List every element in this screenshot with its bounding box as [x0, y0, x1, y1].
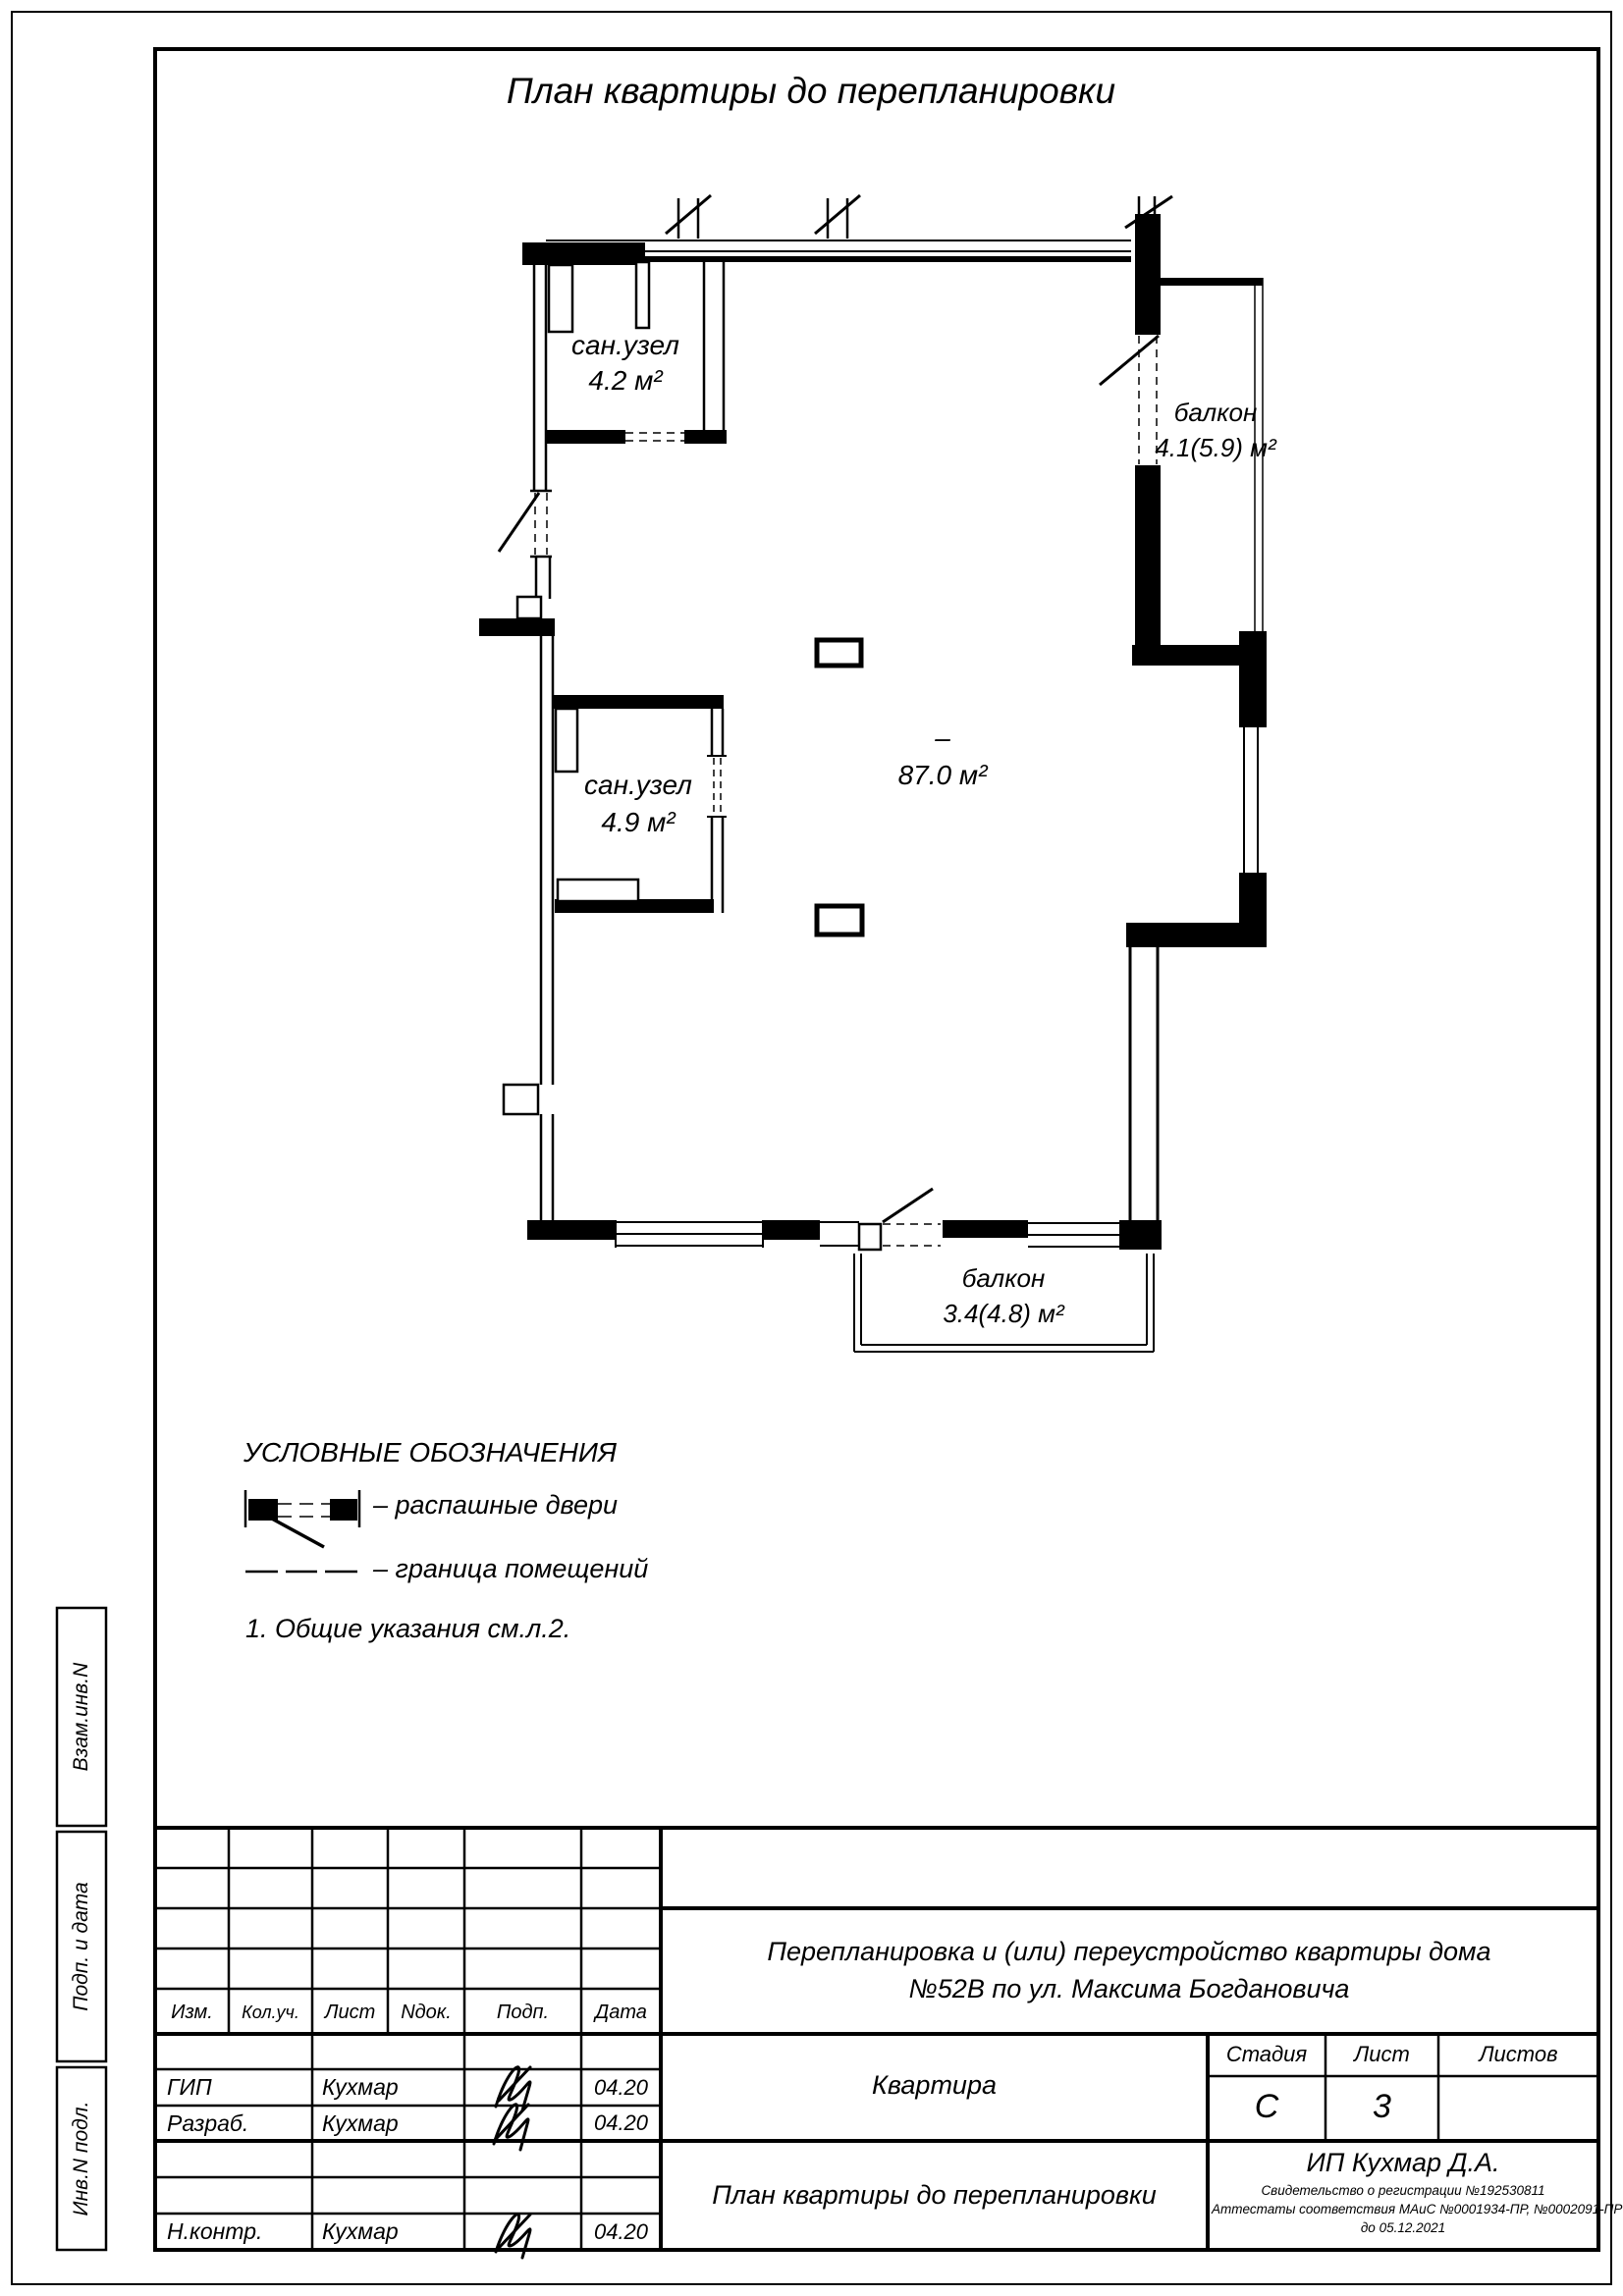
- tb-row-date: 04.20: [581, 2106, 661, 2141]
- tb-sheet-title: План квартиры до перепланировки: [671, 2141, 1198, 2250]
- sidebar-cell-inv: Инв.N подл.: [57, 2067, 106, 2250]
- bottom-wall: [527, 1189, 1162, 1250]
- drawing-sheet: План квартиры до перепланировки сан.узел…: [0, 0, 1623, 2296]
- sidebar-cell-vzam: Взам.инв.N: [57, 1608, 106, 1826]
- tb-col-ndok: Nдок.: [388, 1993, 464, 2032]
- duct: [558, 880, 638, 901]
- balcony-right-area: 4.1(5.9) м²: [1117, 434, 1314, 463]
- column: [817, 640, 861, 666]
- door-swing: [1100, 336, 1159, 385]
- tb-row-name: Кухмар: [322, 2069, 460, 2106]
- legend-item-boundary: – граница помещений: [373, 1554, 648, 1584]
- pilaster: [504, 1085, 538, 1114]
- pilaster: [517, 597, 541, 618]
- tb-sheet-value: 3: [1325, 2076, 1438, 2137]
- balcony-right-name: балкон: [1117, 399, 1314, 428]
- tb-firm: ИП Кухмар Д.А.: [1212, 2148, 1595, 2178]
- tb-row-date: 04.20: [581, 2214, 661, 2250]
- tb-col-data: Дата: [581, 1993, 661, 2032]
- room-san42-area: 4.2 м²: [527, 365, 724, 397]
- tb-object: Квартира: [671, 2034, 1198, 2137]
- tb-row-role: Разраб.: [167, 2106, 310, 2141]
- room-main-area: 87.0 м²: [844, 760, 1041, 791]
- tb-sheets-value: [1438, 2076, 1598, 2137]
- door-swing: [499, 493, 539, 552]
- column: [817, 906, 862, 934]
- tb-project-title: Перепланировка и (или) переустройство кв…: [736, 1912, 1522, 2030]
- tb-stage-label: Стадия: [1208, 2036, 1325, 2073]
- page-title: План квартиры до перепланировки: [320, 71, 1302, 113]
- tb-row-role: ГИП: [167, 2069, 310, 2106]
- tb-cert1: Свидетельство о регистрации №192530811: [1212, 2183, 1595, 2199]
- door-swing: [883, 1189, 933, 1222]
- room-san49: [553, 695, 727, 913]
- balcony-bottom-name: балкон: [905, 1264, 1102, 1294]
- right-wall: [1100, 214, 1267, 1222]
- room-san42-name: сан.узел: [527, 330, 724, 361]
- room-san49-area: 4.9 м²: [540, 807, 736, 838]
- tb-col-podp: Подп.: [464, 1993, 581, 2032]
- tb-sheet-label: Лист: [1325, 2036, 1438, 2073]
- tb-stage-value: С: [1208, 2076, 1325, 2137]
- signature: [494, 2067, 530, 2258]
- duct: [556, 709, 577, 772]
- tb-row-name: Кухмар: [322, 2214, 460, 2250]
- tb-cert2: Аттестаты соответствия МАиС №0001934-ПР,…: [1212, 2202, 1595, 2217]
- sidebar-cell-podp: Подп. и дата: [57, 1832, 106, 2061]
- balcony-bottom-area: 3.4(4.8) м²: [905, 1300, 1102, 1329]
- swing-door-symbol: [245, 1490, 359, 1547]
- vent-stack-icon: [666, 195, 1172, 239]
- legend-item-doors: – распашные двери: [373, 1490, 618, 1521]
- tb-col-list: Лист: [312, 1993, 388, 2032]
- legend-heading: УСЛОВНЫЕ ОБОЗНАЧЕНИЯ: [243, 1437, 617, 1468]
- tb-cert3: до 05.12.2021: [1212, 2220, 1595, 2236]
- tb-col-izm: Изм.: [155, 1993, 229, 2032]
- general-note: 1. Общие указания см.л.2.: [245, 1614, 570, 1644]
- tb-col-koluch: Кол.уч.: [229, 1993, 312, 2032]
- room-san49-name: сан.узел: [540, 770, 736, 801]
- room-main-number-dash: –: [844, 722, 1041, 754]
- tb-sheets-label: Листов: [1438, 2036, 1598, 2073]
- left-wall: [479, 265, 555, 1222]
- tb-row-role: Н.контр.: [167, 2214, 310, 2250]
- top-wall: [522, 240, 1131, 265]
- tb-row-name: Кухмар: [322, 2106, 460, 2141]
- tb-row-date: 04.20: [581, 2069, 661, 2106]
